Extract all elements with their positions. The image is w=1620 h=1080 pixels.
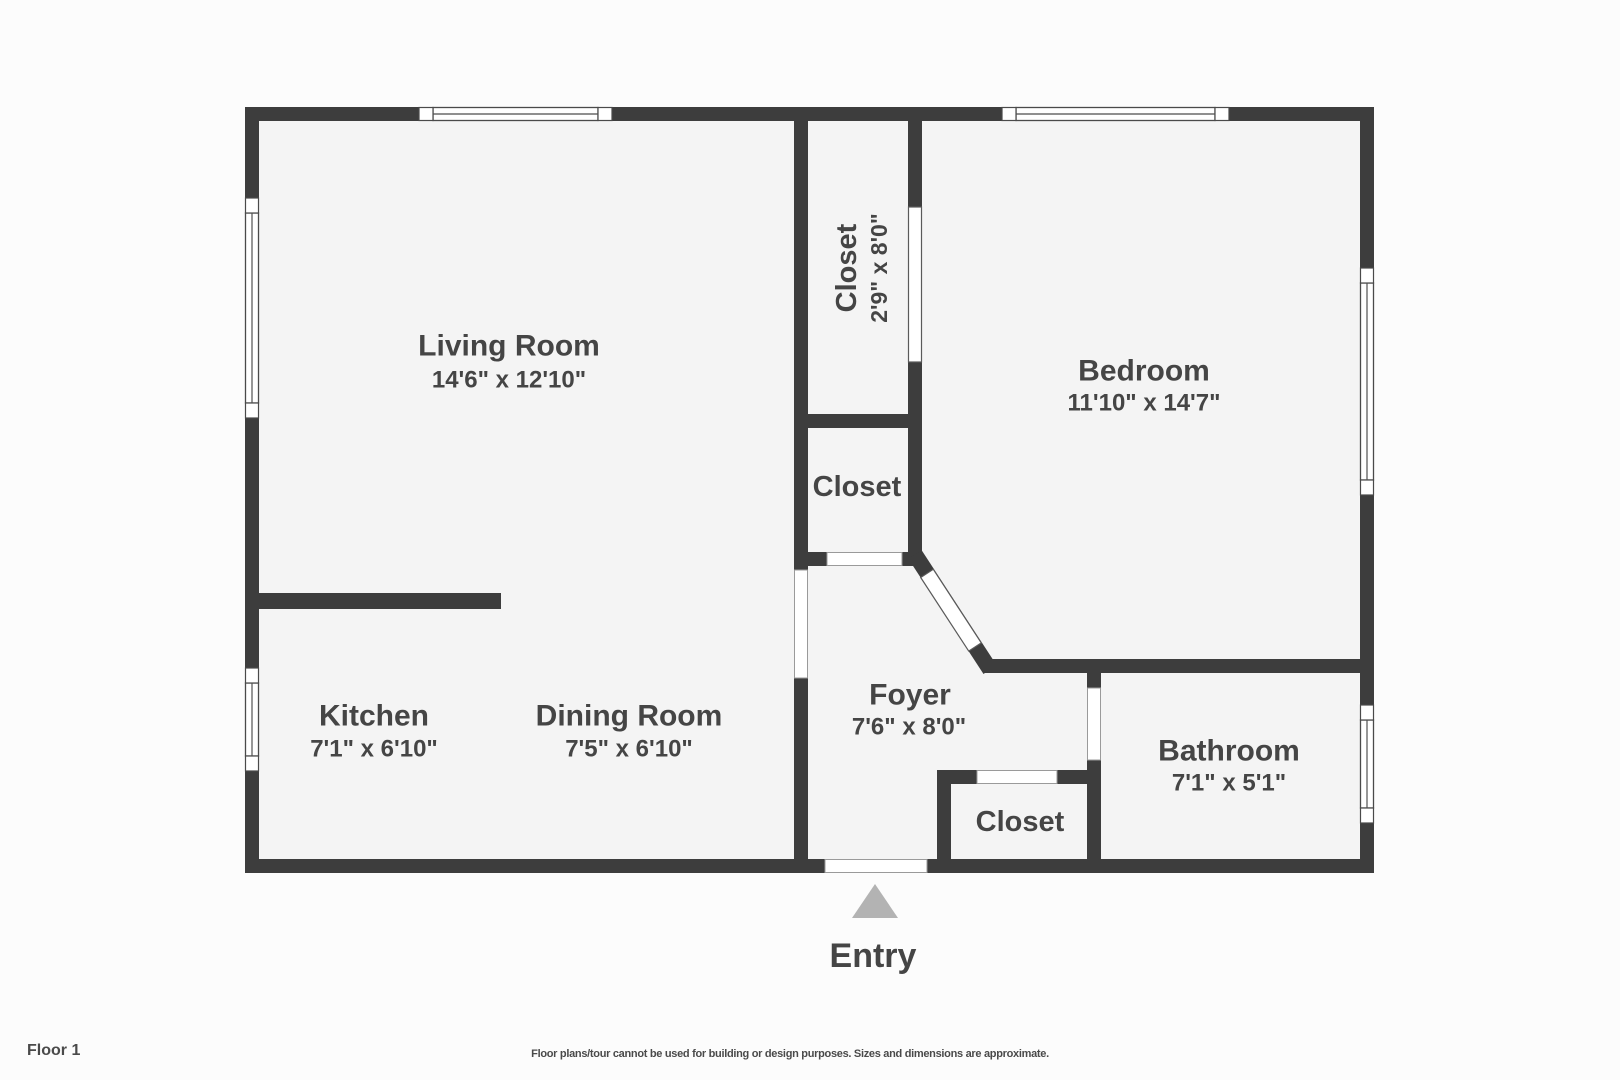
bedroom-closet-label: Closet bbox=[831, 223, 863, 312]
foyer-dimensions: 7'6" x 8'0" bbox=[852, 714, 966, 741]
dining-room-dimensions: 7'5" x 6'10" bbox=[565, 736, 693, 763]
window-bathroom-right bbox=[1361, 705, 1374, 823]
door-dining-to-foyer bbox=[795, 570, 808, 678]
kitchen-label: Kitchen bbox=[319, 700, 429, 733]
entry-label: Entry bbox=[830, 937, 917, 975]
bedroom-closet-dimensions: 2'9" x 8'0" bbox=[866, 213, 892, 323]
bathroom-dimensions: 7'1" x 5'1" bbox=[1172, 770, 1286, 797]
bedroom-label: Bedroom bbox=[1078, 355, 1210, 388]
door-bedroom-closet-slider bbox=[909, 207, 922, 362]
disclaimer-text: Floor plans/tour cannot be used for buil… bbox=[0, 1048, 1580, 1060]
window-living-room-left bbox=[246, 198, 259, 418]
floor-plan-canvas: Living Room 14'6" x 12'10" Bedroom 11'10… bbox=[0, 0, 1620, 1080]
wall-entry-closet-left bbox=[937, 770, 951, 859]
window-bedroom-top bbox=[1002, 108, 1229, 121]
entry-arrow-icon bbox=[852, 884, 898, 918]
entry-closet-label: Closet bbox=[976, 806, 1065, 838]
living-room-dimensions: 14'6" x 12'10" bbox=[432, 367, 586, 394]
foyer-label: Foyer bbox=[869, 679, 951, 712]
wall-center-upper bbox=[794, 107, 808, 570]
wall-bedroom-closet-bottom bbox=[794, 414, 922, 428]
bathroom-label: Bathroom bbox=[1158, 735, 1300, 768]
kitchen-dimensions: 7'1" x 6'10" bbox=[310, 736, 438, 763]
wall-center-lower bbox=[794, 678, 808, 859]
window-kitchen-left bbox=[246, 668, 259, 771]
floor-plan-page: Living Room 14'6" x 12'10" Bedroom 11'10… bbox=[0, 0, 1620, 1080]
bedroom-dimensions: 11'10" x 14'7" bbox=[1068, 390, 1221, 417]
dining-room-label: Dining Room bbox=[536, 700, 723, 733]
living-room-label: Living Room bbox=[418, 330, 600, 363]
door-hall-closet bbox=[827, 553, 902, 566]
door-bathroom bbox=[1088, 688, 1101, 760]
window-living-room-top bbox=[419, 108, 612, 121]
door-entry-closet bbox=[977, 771, 1057, 784]
bedroom-closet-label-group: Closet 2'9" x 8'0" bbox=[831, 213, 892, 323]
hall-closet-label: Closet bbox=[813, 471, 902, 503]
door-entry bbox=[825, 860, 927, 873]
wall-bedroom-bottom bbox=[985, 659, 1374, 673]
window-bedroom-right bbox=[1361, 268, 1374, 495]
wall-kitchen-divider bbox=[245, 593, 501, 609]
wall-bottom bbox=[245, 859, 1374, 873]
